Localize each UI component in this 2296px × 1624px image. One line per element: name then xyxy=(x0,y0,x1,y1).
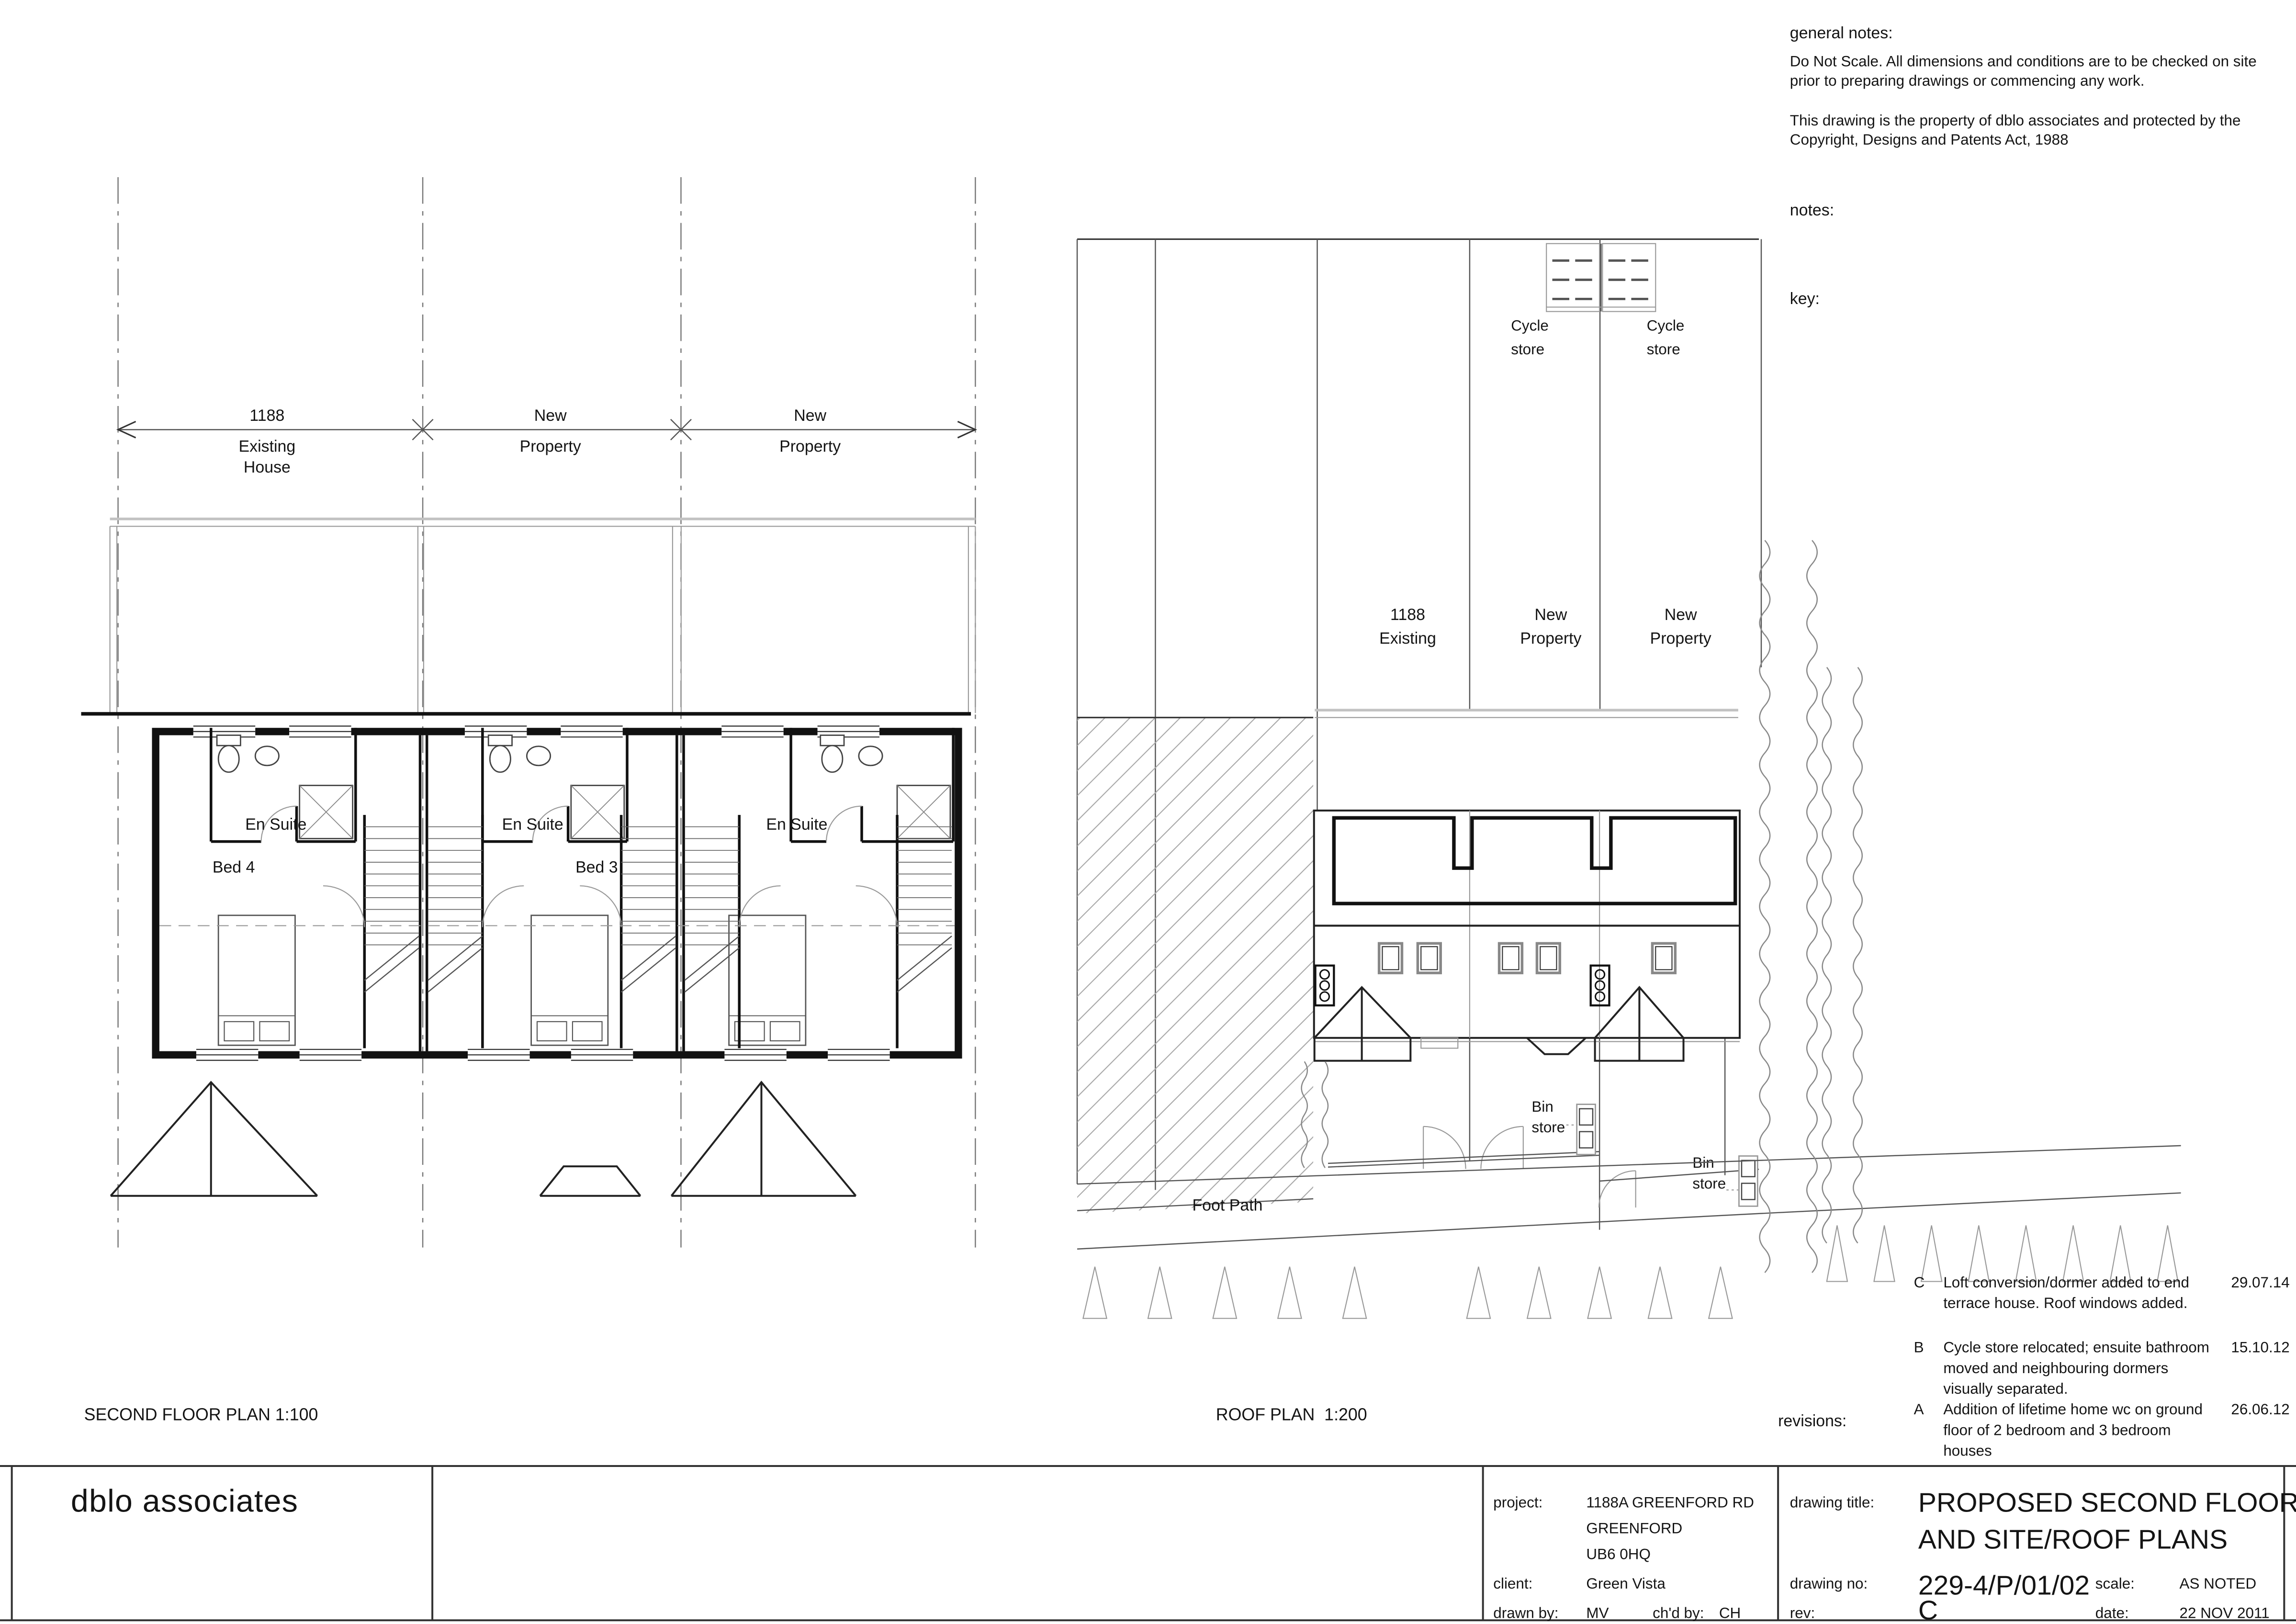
shower-icon xyxy=(897,785,950,838)
bin-store-1: Bin store xyxy=(1531,1098,1595,1154)
left-hip-roof xyxy=(111,1082,317,1195)
revision-C-line2: terrace house. Roof windows added. xyxy=(1943,1295,2187,1311)
basin-icon xyxy=(255,746,279,766)
general-notes-line4: Copyright, Designs and Patents Act, 1988 xyxy=(1790,131,2069,148)
porch-roof xyxy=(1421,1038,1458,1049)
revision-A-date: 26.06.12 xyxy=(2231,1401,2289,1418)
unit-1: En Suite Bed 4 xyxy=(211,728,356,1045)
drawing-no-value: 229-4/P/01/02 xyxy=(1918,1570,2090,1601)
client-label: client: xyxy=(1493,1575,1532,1592)
property-label-new1-line2: Property xyxy=(1520,629,1581,647)
revisions-heading: revisions: xyxy=(1778,1412,1846,1430)
cycle-store-2-label-line2: store xyxy=(1647,341,1680,358)
hedge xyxy=(1302,541,1862,1273)
footpath-label: Foot Path xyxy=(1192,1196,1262,1215)
architectural-drawing-sheet: 1188 Existing House New Property New Pro… xyxy=(0,0,2296,1624)
revision-A-line2: floor of 2 bedroom and 3 bedroom xyxy=(1943,1421,2171,1438)
dim-label-existing-line1: 1188 xyxy=(249,406,284,425)
key-heading: key: xyxy=(1790,290,1820,308)
cycle-stores: Cycle store Cycle store xyxy=(1511,244,1684,358)
bin-store-1-label-line2: store xyxy=(1531,1119,1565,1136)
foot-path: Foot Path xyxy=(1077,1146,2181,1249)
revisions-block: revisions: C Loft conversion/dormer adde… xyxy=(1778,1274,2290,1459)
revision-A-line3: houses xyxy=(1943,1442,1992,1459)
rear-dormer-outline xyxy=(81,519,976,714)
project-value-line2: GREENFORD xyxy=(1586,1520,1682,1536)
property-label-new2-line1: New xyxy=(1665,606,1697,624)
room-label-ensuite-1: En Suite xyxy=(245,815,306,834)
cycle-store-2-label-line1: Cycle xyxy=(1647,317,1685,334)
property-label-1188-line2: Existing xyxy=(1379,629,1436,647)
drawing-no-label: drawing no: xyxy=(1790,1575,1868,1592)
building-roof xyxy=(1314,710,1740,1060)
project-label: project: xyxy=(1493,1494,1542,1511)
general-notes: general notes: Do Not Scale. All dimensi… xyxy=(1790,24,2257,308)
general-notes-heading: general notes: xyxy=(1790,24,1893,42)
drawn-by-label: drawn by: xyxy=(1493,1605,1558,1622)
scale-value: AS NOTED xyxy=(2180,1575,2257,1592)
property-label-1188-line1: 1188 xyxy=(1390,606,1425,624)
revision-C-line1: Loft conversion/dormer added to end xyxy=(1943,1274,2189,1291)
bed-icon xyxy=(531,915,608,1045)
revision-C-letter: C xyxy=(1914,1274,1925,1291)
general-notes-line1: Do Not Scale. All dimensions and conditi… xyxy=(1790,53,2257,70)
revision-B-letter: B xyxy=(1914,1339,1924,1356)
general-notes-line3: This drawing is the property of dblo ass… xyxy=(1790,112,2241,129)
property-labels: 1188 Existing New Property New Property xyxy=(1379,606,1711,647)
rooflight-icon xyxy=(1316,966,1334,1005)
roof-windows xyxy=(1379,943,1676,973)
title-block: dblo associates project: 1188A GREENFORD… xyxy=(0,1466,2296,1624)
scale-label: scale: xyxy=(2095,1575,2135,1592)
roof-plan-title: ROOF PLAN 1:200 xyxy=(1216,1405,1367,1424)
revision-B-date: 15.10.12 xyxy=(2231,1339,2289,1356)
right-hip-roof xyxy=(671,1082,855,1195)
center-bay xyxy=(1527,1038,1586,1054)
bed-icon xyxy=(218,915,295,1045)
dim-label-new1-line2: Property xyxy=(520,438,581,456)
revision-C-date: 29.07.14 xyxy=(2231,1274,2289,1291)
date-label: date: xyxy=(2095,1605,2129,1622)
unit-2: En Suite Bed 3 xyxy=(483,728,627,1045)
second-floor-plan: 1188 Existing House New Property New Pro… xyxy=(81,177,976,1424)
cycle-store-1-label-line1: Cycle xyxy=(1511,317,1549,334)
basin-icon xyxy=(859,746,882,766)
plan-title: SECOND FLOOR PLAN 1:100 xyxy=(84,1405,318,1424)
stairs xyxy=(323,815,952,1048)
drawing-title-line2: AND SITE/ROOF PLANS xyxy=(1918,1524,2228,1555)
checked-by-value: CH xyxy=(1719,1605,1741,1622)
room-label-bed3: Bed 3 xyxy=(575,858,618,876)
client-value: Green Vista xyxy=(1586,1575,1666,1592)
checked-by-label: ch'd by: xyxy=(1653,1605,1704,1622)
dim-label-existing-line3: House xyxy=(244,458,291,476)
rev-value: C xyxy=(1918,1595,1938,1624)
unit-3: En Suite xyxy=(729,728,954,1045)
drawing-title-line1: PROPOSED SECOND FLOOR xyxy=(1918,1488,2296,1518)
room-label-bed4: Bed 4 xyxy=(213,858,255,876)
revision-B-line2: moved and neighbouring dormers xyxy=(1943,1360,2168,1376)
room-label-ensuite-3: En Suite xyxy=(766,815,827,834)
room-label-ensuite-2: En Suite xyxy=(502,815,563,834)
property-label-new2-line2: Property xyxy=(1650,629,1711,647)
ensuite-door-arc xyxy=(826,806,862,842)
dimension-line: 1188 Existing House New Property New Pro… xyxy=(118,406,976,476)
dormer-flat-roof xyxy=(1334,818,1735,903)
toilet-icon xyxy=(217,735,240,772)
drawn-by-value: MV xyxy=(1586,1605,1609,1622)
rev-label: rev: xyxy=(1790,1605,1815,1622)
company-name: dblo associates xyxy=(71,1484,298,1519)
shower-icon xyxy=(300,785,353,838)
dim-label-new2-line2: Property xyxy=(779,438,841,456)
dim-label-existing-line2: Existing xyxy=(239,438,296,456)
shower-icon xyxy=(571,785,624,838)
notes-heading: notes: xyxy=(1790,201,1834,219)
dim-label-new2-line1: New xyxy=(794,406,826,425)
bin-store-1-label-line1: Bin xyxy=(1531,1098,1553,1115)
site-boundaries xyxy=(1077,239,1761,1230)
center-bay-roof xyxy=(540,1166,641,1196)
property-label-new1-line1: New xyxy=(1535,606,1567,624)
revision-A-letter: A xyxy=(1914,1401,1924,1418)
basin-icon xyxy=(527,746,550,766)
bin-store-2-label-line2: store xyxy=(1692,1175,1726,1192)
revision-B-line1: Cycle store relocated; ensuite bathroom xyxy=(1943,1339,2209,1356)
revision-A-line1: Addition of lifetime home wc on ground xyxy=(1943,1401,2203,1418)
project-value-line3: UB6 0HQ xyxy=(1586,1545,1651,1562)
drawing-title-label: drawing title: xyxy=(1790,1494,1874,1511)
cycle-store-1-label-line2: store xyxy=(1511,341,1544,358)
date-value: 22 NOV 2011 xyxy=(2180,1605,2270,1622)
toilet-icon xyxy=(488,735,512,772)
dim-label-new1-line1: New xyxy=(534,406,567,425)
project-value-line1: 1188A GREENFORD RD xyxy=(1586,1494,1754,1511)
general-notes-line2: prior to preparing drawings or commencin… xyxy=(1790,72,2145,89)
revision-B-line3: visually separated. xyxy=(1943,1380,2068,1397)
toilet-icon xyxy=(821,735,844,772)
bay-roofs-below xyxy=(111,1082,856,1195)
